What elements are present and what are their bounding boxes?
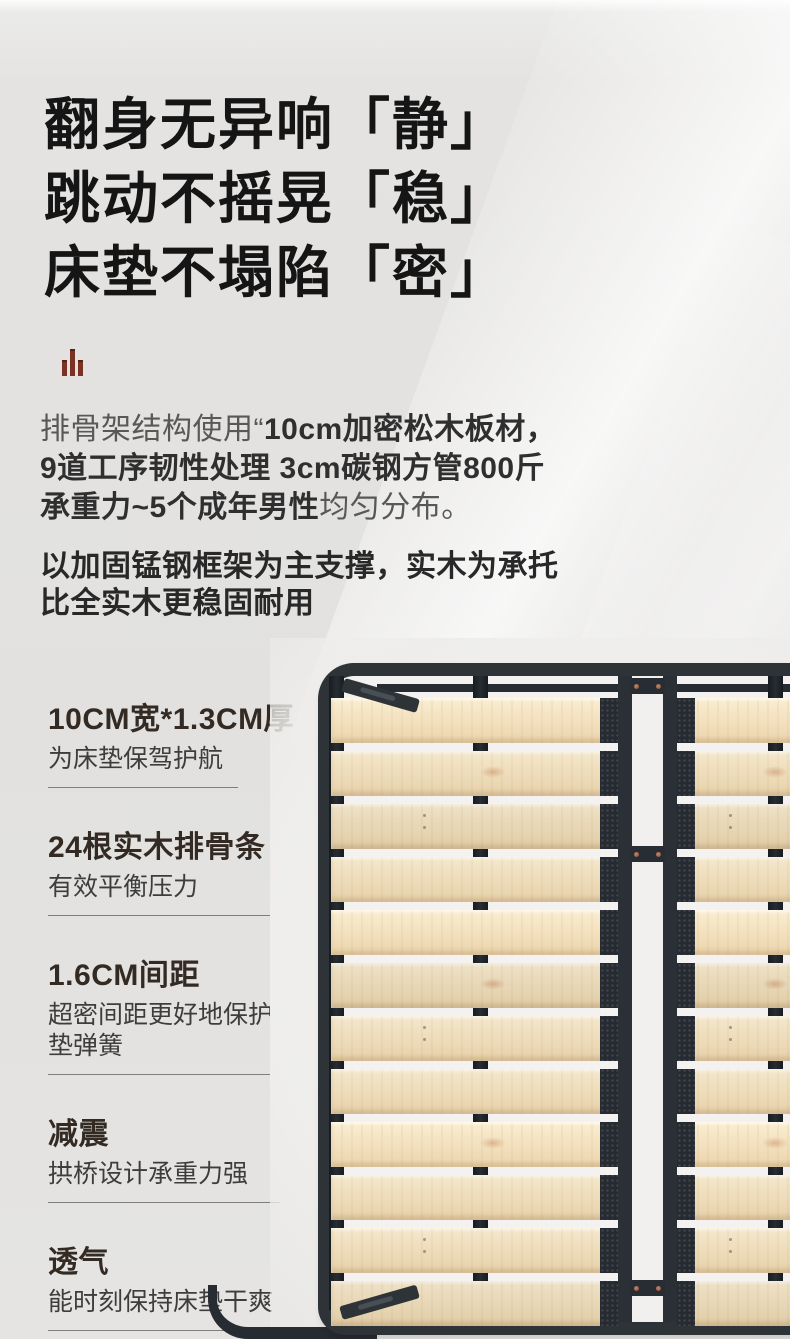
- bar-chart-icon: [62, 351, 83, 376]
- slat-end-caps: [600, 698, 618, 1326]
- wood-slat: [331, 963, 618, 1008]
- intro-text: 排骨架结构使用“: [40, 413, 264, 446]
- rail-bracket: [630, 1280, 665, 1296]
- intro-paragraph-materials: 排骨架结构使用“10cm加密松木板材，9道工序韧性处理 3cm碳钢方管800斤承…: [40, 410, 600, 527]
- wood-slat: [331, 1069, 618, 1114]
- rail-bracket: [630, 846, 665, 862]
- intro-text-bold: 10cm加密松木板材，: [264, 413, 556, 446]
- product-detail-page: 翻身无异响「静」 跳动不摇晃「稳」 床垫不塌陷「密」 排骨架结构使用“10cm加…: [0, 0, 790, 1339]
- screw: [656, 852, 661, 857]
- intro-paragraph-structure: 以加固锰钢框架为主支撑，实木为承托 比全实木更稳固耐用: [40, 548, 600, 622]
- intro-text-bold: 9道工序韧性处理 3cm碳钢方管800斤: [40, 452, 545, 485]
- wood-slat: [331, 698, 618, 743]
- headline-line-2: 跳动不摇晃「稳」: [44, 167, 508, 230]
- screw: [656, 684, 661, 689]
- rail-bracket: [630, 678, 665, 694]
- feature-divider: [48, 787, 238, 788]
- screw: [634, 1286, 639, 1291]
- metal-frame: [318, 663, 790, 1335]
- wood-slat: [331, 1175, 618, 1220]
- screw: [656, 1286, 661, 1291]
- intro-text: 均匀分布。: [319, 491, 472, 524]
- wood-slat: [331, 910, 618, 955]
- bed-frame-photo: [300, 648, 790, 1339]
- wood-slat: [331, 857, 618, 902]
- slat-column-left: [331, 698, 618, 1334]
- feature-divider: [48, 1202, 280, 1203]
- page-title: 翻身无异响「静」 跳动不摇晃「稳」 床垫不塌陷「密」: [44, 88, 508, 310]
- intro-text-bold: 承重力~5个成年男性: [40, 491, 319, 524]
- wood-slat: [331, 751, 618, 796]
- center-support-rail: [618, 676, 677, 1322]
- feature-divider: [48, 915, 280, 916]
- wood-slat: [331, 1016, 618, 1061]
- feature-divider: [48, 1074, 280, 1075]
- structure-line-1: 以加固锰钢框架为主支撑，实木为承托: [40, 550, 559, 583]
- light-streak: [0, 0, 790, 12]
- screw: [634, 684, 639, 689]
- slat-end-caps: [677, 698, 695, 1326]
- wood-slat: [331, 1122, 618, 1167]
- headline-line-3: 床垫不塌陷「密」: [44, 241, 508, 304]
- screw: [634, 852, 639, 857]
- wood-slat: [331, 804, 618, 849]
- headline-line-1: 翻身无异响「静」: [44, 93, 508, 156]
- wood-slat: [331, 1228, 618, 1273]
- frame-back-rail: [377, 684, 790, 692]
- structure-line-2: 比全实木更稳固耐用: [40, 587, 315, 620]
